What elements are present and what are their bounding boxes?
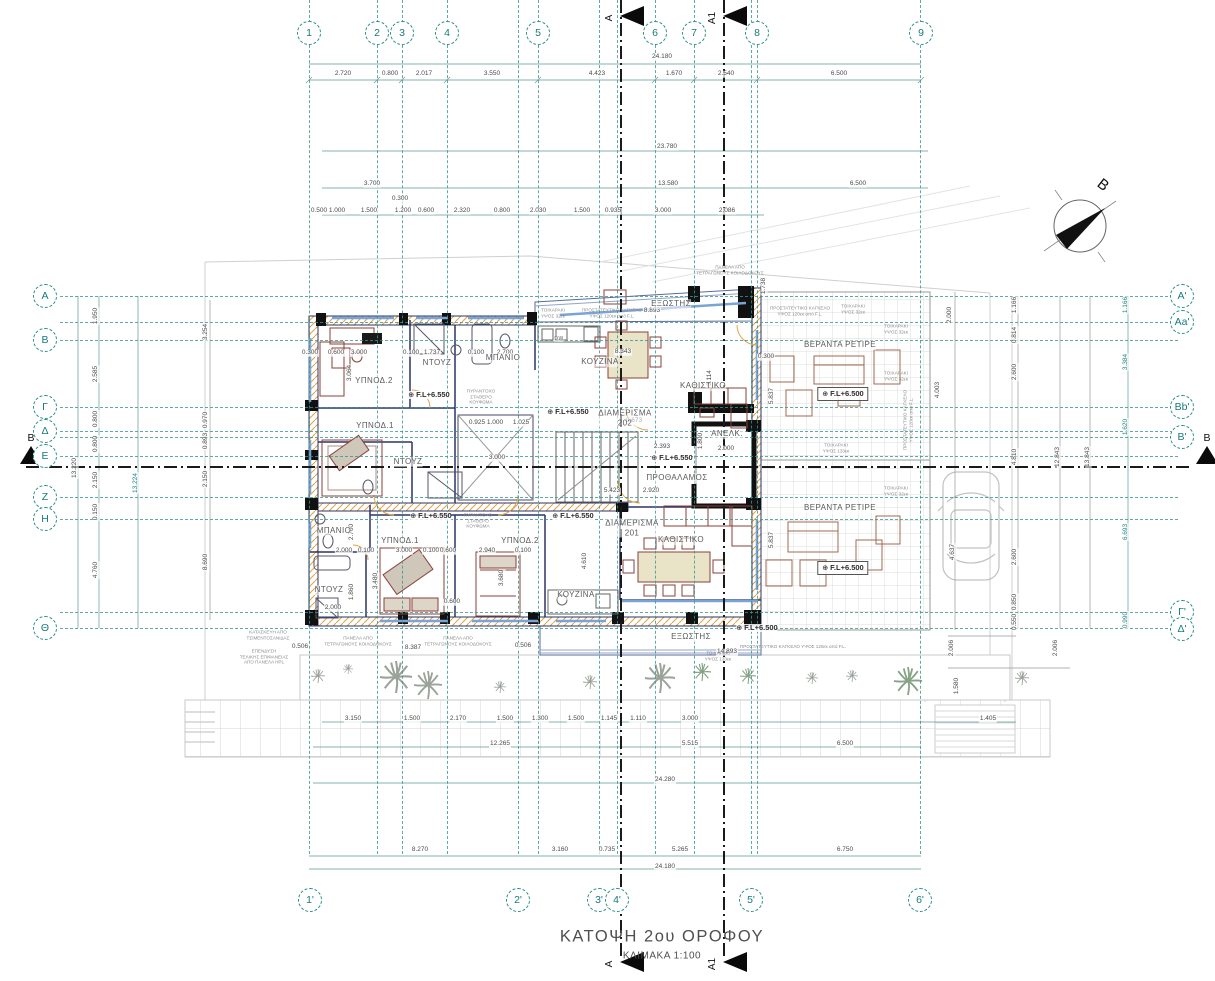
section-label-A1: A1 — [708, 958, 718, 970]
dimension-text: 2.000 — [717, 446, 735, 453]
dimension-text: 0.800 — [493, 208, 511, 215]
dimension-text: 1.670 — [665, 71, 683, 78]
dimension-text: 3.000 — [350, 350, 368, 357]
drawing-title: ΚΑΤΟΨΗ 2ου ΟΡΟΦΟΥ — [560, 928, 764, 947]
level-marker-icon: ⊕ — [651, 455, 657, 462]
dimension-text: 1.500 — [573, 208, 591, 215]
dimension-text: 0.550 — [1012, 613, 1019, 631]
dimension-text: 4.760 — [93, 561, 100, 579]
room-label: ΥΠΝΟΔ.1 — [381, 536, 419, 546]
room-label: ΔΙΑΜΕΡΙΣΜΑ 201 — [605, 518, 658, 537]
dimension-text: 3.000 — [395, 548, 413, 555]
dimension-text: 2.017 — [415, 71, 433, 78]
dimension-text: 3.000 — [654, 208, 672, 215]
grid-bubble-4': 4' — [605, 888, 629, 912]
dimension-text: 5.515 — [681, 741, 699, 748]
dimension-text: 2.320 — [453, 208, 471, 215]
room-label: ΒΕΡΑΝΤΑ ΡΕΤΙΡΕ — [804, 503, 876, 513]
grid-bubble-Αa': Αa' — [1170, 310, 1194, 334]
dimension-text: 3.000 — [488, 455, 506, 462]
dimension-text: 0.300 — [757, 354, 775, 361]
dimension-text: 8.690 — [203, 553, 210, 571]
dimension-text: 23.780 — [656, 144, 678, 151]
annotation-note: ΚΑΤΑΣΚΕΥΗ ΑΠΟ ΤΣΙΜΕΝΤΟΣΑΝΙΔΑΣ — [247, 629, 290, 640]
car — [938, 472, 1004, 580]
level-label: ⊕F.L+6.550 — [408, 391, 449, 399]
dimension-text: 0.100 — [402, 350, 420, 357]
grid-line-vertical — [402, 0, 403, 854]
annotation-note: ΠΥΡΑΝΤΟΧΟ ΣΤΑΘΕΡΟ ΚΟΥΦΩΜΑ — [467, 388, 495, 405]
room-label: ΚΑΘΙΣΤΙΚΟ — [680, 381, 726, 391]
dimension-text: 2.585 — [93, 365, 100, 383]
dimension-text: 2.920 — [642, 488, 660, 495]
grid-line-vertical — [447, 0, 448, 854]
annotation-note: ΠΡΟΣΤΑΤΕΥΤΙΚΟ ΚΑΓΚΕΛΟ ΥΨΟΣ 120εκ από F.L… — [902, 390, 913, 450]
dimension-text: 2.000 — [947, 306, 954, 324]
grid-line-horizontal — [60, 497, 1178, 498]
level-label: ⊕F.L+6.500 — [817, 561, 868, 575]
dimension-text: 24.280 — [654, 777, 676, 784]
dimension-text: 2.006 — [1053, 639, 1060, 657]
dimension-text: 1.300 — [531, 716, 549, 723]
room-label: ΝΤΟΥΖ — [315, 585, 344, 595]
room-label: ΜΠΑΝΙΟ — [317, 526, 351, 536]
dimension-text: 2.086 — [718, 208, 736, 215]
grid-line-vertical — [694, 0, 695, 854]
dimension-text: 13.224 — [133, 472, 140, 494]
dimension-text: 4.637 — [950, 543, 957, 561]
dimension-text: 1.000 — [328, 208, 346, 215]
dimension-text: 1.166 — [1012, 296, 1019, 314]
annotation-note: ΠΡΟΣΤΑΤΕΥΤΙΚΟ ΚΑΓΚΕΛΟ ΥΨΟΣ 120εκ από F.L… — [770, 305, 830, 316]
dimension-text: 1.405 — [979, 716, 997, 723]
room-label: ΜΠΑΝΙΟ — [486, 353, 520, 363]
room-label: ΥΠΝΟΔ.1 — [356, 421, 394, 431]
grid-bubble-Ζ: Ζ — [33, 485, 57, 509]
dimension-text: 0.100 — [467, 350, 485, 357]
annotation-note: ΕΠΕΝΔΥΣΗ ΤΕΛΙΚΗΣ ΕΠΙΦΑΝΕΙΑΣ ΑΠΟ ΠΑΝΕΛΑ H… — [240, 648, 289, 665]
annotation-note: ΠΑΝΕΛΑ ΑΠΟ ΤΕΤΡΑΓΩΝΟΥΣ ΚΟΙΛΟΔΟΚΟΥΣ — [696, 264, 763, 275]
dimension-text: 3.700 — [363, 181, 381, 188]
dimension-text: 24.180 — [654, 864, 676, 871]
dimension-text: 1.500 — [496, 716, 514, 723]
dimension-text: 24.180 — [651, 54, 673, 61]
grid-bubble-Θ: Θ — [33, 616, 57, 640]
dimension-text: 2.720 — [334, 71, 352, 78]
dimension-text: 0.990 — [1123, 611, 1130, 629]
dimension-text: 1.800 — [698, 432, 705, 450]
dimension-text: 0.735 — [598, 847, 616, 854]
dimension-text: 1.025 — [512, 420, 530, 427]
dimension-text: 0.500 — [310, 208, 328, 215]
dimension-text: 2.000 — [335, 548, 353, 555]
grid-bubble-Α: Α — [33, 284, 57, 308]
level-marker-icon: ⊕ — [408, 392, 414, 399]
annotation-note: ΠΥΡΑΝΤΟΧΟ ΣΤΑΘΕΡΟ ΚΟΥΦΩΜΑ — [464, 512, 492, 529]
dimension-text: 6.750 — [836, 847, 854, 854]
dimension-text: 1.580 — [954, 677, 961, 695]
room-label: ΕΞΩΣΤΗΣ — [651, 299, 691, 309]
level-marker-icon: ⊕ — [822, 565, 828, 572]
section-label-B: B — [1203, 432, 1210, 444]
dimension-text: 4.423 — [588, 71, 606, 78]
dimension-text: 2.150 — [203, 470, 210, 488]
annotation-note: ΠΑΝΕΛΑ ΑΠΟ ΤΕΤΡΑΓΩΝΟΥΣ ΚΟΙΛΟΔΟΚΟΥΣ — [424, 635, 491, 646]
room-label: ΚΟΥΖΙΝΑ — [557, 590, 594, 600]
dimension-text: 0.100 — [514, 548, 532, 555]
dimension-text: 0.600 — [443, 599, 461, 606]
grid-bubble-3: 3 — [390, 21, 414, 45]
dimension-text: 8.343 — [614, 349, 632, 356]
dimension-text: 5.837 — [769, 387, 776, 405]
floor-plan-sheet: AAA1A1BB1234567891'2'3'4'5'6'ΑΒΓΔΕΖΗΘΑ'Α… — [0, 0, 1215, 981]
level-label: ⊕F.L+6.550 — [410, 512, 451, 520]
dimension-text: 8.270 — [411, 847, 429, 854]
dimension-text: 1.110 — [629, 716, 647, 723]
room-label: ΥΠΝΟΔ.2 — [501, 536, 539, 546]
dimension-text: 1.620 — [1123, 418, 1130, 436]
dimension-text: 0.300 — [391, 196, 409, 203]
dimension-text: 2.150 — [93, 471, 100, 489]
dimension-text: 1.737 — [423, 350, 441, 357]
dimension-text: 5.265 — [671, 847, 689, 854]
section-arrow-B — [1196, 446, 1215, 464]
grid-bubble-Γ: Γ — [33, 395, 57, 419]
dimension-text: 0.925 — [468, 420, 486, 427]
dimension-text: 0.850 — [1012, 593, 1019, 611]
room-label: ΥΠΝΟΔ.2 — [355, 376, 393, 386]
dimension-text: 1.860 — [349, 583, 356, 601]
dimension-text: 1.738 — [761, 277, 768, 295]
grid-bubble-9: 9 — [909, 21, 933, 45]
grid-line-vertical — [757, 0, 758, 854]
room-label: ΝΤΟΥΖ — [394, 457, 423, 467]
grid-bubble-6': 6' — [908, 888, 932, 912]
dimension-text: 0.800 — [93, 410, 100, 428]
grid-bubble-1: 1 — [297, 21, 321, 45]
dimension-text: 13.580 — [657, 181, 679, 188]
grid-line-horizontal — [60, 431, 1178, 432]
room-label: ΔΙΑΜΕΡΙΣΜΑ 202 — [598, 408, 651, 427]
dimension-text: 2.940 — [478, 548, 496, 555]
grid-line-vertical — [518, 0, 519, 854]
dimension-text: 3.254 — [203, 323, 210, 341]
annotation-note: ΠΡΟΣΤΑΤΕΥΤΙΚΟ ΚΑΓΚΕΛΟ ΥΨΟΣ 120εκ από F.L… — [582, 307, 642, 318]
room-label: ΕΞΩΣΤΗΣ — [671, 632, 711, 642]
dimension-text: 0.600 — [439, 548, 457, 555]
grid-line-horizontal — [60, 322, 1178, 323]
dimension-text: 3.384 — [1123, 353, 1130, 371]
dimension-text: 2.600 — [1012, 363, 1019, 381]
section-arrow-A — [620, 6, 644, 26]
grid-bubble-1': 1' — [298, 888, 322, 912]
grid-line-vertical — [655, 0, 656, 854]
grid-bubble-5: 5 — [526, 21, 550, 45]
grid-bubble-2: 2 — [365, 21, 389, 45]
dimension-text: 6.500 — [849, 181, 867, 188]
dimension-text: 1.145 — [600, 716, 618, 723]
dimension-text: 0.935 — [604, 208, 622, 215]
dimension-text: 0.600 — [327, 350, 345, 357]
room-label: ΠΡΟΘΑΛΑΜΟΣ — [646, 473, 707, 483]
dimension-text: 4.610 — [582, 552, 589, 570]
annotation-note: ΠΡΟΣΤΑΤΕΥΤΙΚΟ ΚΑΓΚΕΛΟ ΥΨΟΣ 120εκ από F.L… — [740, 644, 846, 650]
dimension-text: 5.837 — [769, 531, 776, 549]
dimension-text: 0.100 — [422, 548, 440, 555]
room-label: ΝΤΟΥΖ — [423, 358, 452, 368]
dimension-text: 3.550 — [483, 71, 501, 78]
dimension-text: 2.393 — [653, 444, 671, 451]
annotation-note: ΤΟΙΧΑΡΑΚΙ ΥΨΟΣ 32εκ — [884, 485, 908, 496]
section-arrow-A1 — [723, 952, 747, 972]
dimension-text: 1.500 — [360, 208, 378, 215]
dimension-text: 4.810 — [1012, 448, 1019, 466]
dimension-text: 2.170 — [449, 716, 467, 723]
dimension-text: 2.006 — [949, 639, 956, 657]
dimension-text: 0.600 — [417, 208, 435, 215]
section-label-A: A — [605, 961, 615, 968]
grid-bubble-Δ': Δ' — [1170, 617, 1194, 641]
dimension-text: 3.150 — [344, 716, 362, 723]
dimension-text: 0.300 — [301, 350, 319, 357]
section-label-A: A — [605, 15, 615, 22]
annotation-note: ΤΟΙΧΑΡΑΚΙ ΥΨΟΣ 32εκ — [841, 303, 865, 314]
dimension-text: 2.000 — [324, 605, 342, 612]
dimension-text: 0.970 — [203, 411, 210, 429]
level-label: ⊕F.L+6.550 — [651, 454, 692, 462]
grid-bubble-Α': Α' — [1170, 284, 1194, 308]
dimension-text: 0.800 — [93, 435, 100, 453]
dimension-text: 0.800 — [381, 71, 399, 78]
dimension-text: 13.220 — [72, 457, 79, 479]
dimension-text: 0.100 — [357, 548, 375, 555]
grid-bubble-2': 2' — [506, 888, 530, 912]
dimension-text: 0.814 — [1012, 326, 1019, 344]
section-line-A1 — [723, 0, 725, 958]
dimension-text: 3.680 — [499, 569, 506, 587]
room-label: ΑΝΕΛΚ. — [711, 429, 743, 439]
grid-bubble-5': 5' — [739, 888, 763, 912]
section-line-B — [26, 466, 1192, 468]
grid-bubble-7: 7 — [682, 21, 706, 45]
dimension-text: 0.506 — [291, 644, 309, 651]
grid-bubble-4: 4 — [435, 21, 459, 45]
grid-line-vertical — [920, 0, 921, 854]
dimension-text: 0.150 — [93, 503, 100, 521]
level-label: ⊕F.L+6.500 — [817, 387, 868, 401]
dimension-text: 4.003 — [935, 381, 942, 399]
grid-line-vertical — [538, 0, 539, 854]
grid-bubble-Η: Η — [33, 507, 57, 531]
dimension-text: 1.166 — [1123, 296, 1130, 314]
dimension-text: 3.000 — [681, 716, 699, 723]
dimension-text: 8.387 — [404, 645, 422, 652]
dimension-text: 2.540 — [717, 71, 735, 78]
level-label: ⊕F.L+6.550 — [552, 512, 593, 520]
dimension-text: 0.506 — [514, 643, 532, 650]
north-arrow-icon — [1044, 190, 1116, 262]
grid-bubble-Β: Β — [33, 328, 57, 352]
dimension-text: 3.480 — [373, 572, 380, 590]
grid-bubble-8: 8 — [745, 21, 769, 45]
grid-line-vertical — [309, 0, 310, 854]
dimension-text: 0.893 — [203, 432, 210, 450]
level-marker-icon: ⊕ — [736, 625, 742, 632]
section-label-A1: A1 — [708, 12, 718, 24]
dimension-text: 6.500 — [836, 741, 854, 748]
drawing-scale: ΚΛΙΜΑΚΑ 1:100 — [623, 951, 701, 962]
grid-line-horizontal — [60, 437, 1178, 438]
dimension-text: 13.843 — [1085, 446, 1092, 468]
annotation-note: ΠΑΝΕΛΑ ΑΠΟ ΤΕΤΡΑΓΩΝΟΥΣ ΚΟΙΛΟΔΟΚΟΥΣ — [324, 635, 391, 646]
grid-bubble-Ε: Ε — [33, 444, 57, 468]
room-label: ΚΑΘΙΣΤΙΚΟ — [658, 535, 704, 545]
annotation-note: ΤΟΙΧΑΡΑΚΙ ΥΨΟΣ 32εκ — [541, 307, 565, 318]
dimension-text: 2.030 — [529, 208, 547, 215]
dimension-text: 6.500 — [830, 71, 848, 78]
annotation-note: ΤΟΙΧΑΡΑΚΙ ΥΨΟΣ 32εκ — [884, 370, 908, 381]
dimension-text: 12.265 — [489, 741, 511, 748]
level-label: ⊕F.L+6.550 — [547, 408, 588, 416]
dimension-text: 1.950 — [93, 307, 100, 325]
grid-line-horizontal — [60, 612, 1178, 613]
annotation-note: ΤΟΙΧΑΡΑΚΙ ΥΨΟΣ 133εκ — [705, 650, 732, 661]
annotation-note: ΤΟΙΧΑΡΑΚΙ ΥΨΟΣ 32εκ — [884, 323, 908, 334]
grid-bubble-Β': Β' — [1170, 425, 1194, 449]
level-marker-icon: ⊕ — [547, 409, 553, 416]
level-marker-icon: ⊕ — [552, 513, 558, 520]
grid-bubble-Bb': Bb' — [1170, 395, 1194, 419]
level-marker-icon: ⊕ — [410, 513, 416, 520]
dimension-text: 1.200 — [394, 208, 412, 215]
level-label: ⊕F.L+6.500 — [736, 624, 777, 632]
section-line-A — [620, 0, 622, 958]
room-label: ΒΕΡΑΝΤΑ ΡΕΤΙΡΕ — [804, 340, 876, 350]
dimension-text: 2.600 — [1012, 548, 1019, 566]
dimension-text: 1.500 — [403, 716, 421, 723]
annotation-note: ΤΟΙΧΑΡΑΚΙ ΥΨΟΣ 133εκ — [823, 442, 850, 453]
dimension-text: 1.000 — [486, 420, 504, 427]
grid-line-vertical — [751, 0, 752, 854]
dimension-text: 12.843 — [1055, 446, 1062, 468]
section-arrow-A1 — [723, 6, 747, 26]
room-label: ΚΟΥΖΙΝΑ — [581, 357, 618, 367]
dimension-text: 5.423 — [603, 488, 621, 495]
level-marker-icon: ⊕ — [822, 391, 828, 398]
grid-bubble-Δ: Δ — [33, 419, 57, 443]
dimension-text: 3.160 — [551, 847, 569, 854]
grid-bubble-6: 6 — [643, 21, 667, 45]
room-label: DW — [554, 336, 563, 342]
dimension-text: 6.693 — [1123, 523, 1130, 541]
dimension-text: 1.500 — [567, 716, 585, 723]
dimension-text: 3.064 — [347, 364, 354, 382]
